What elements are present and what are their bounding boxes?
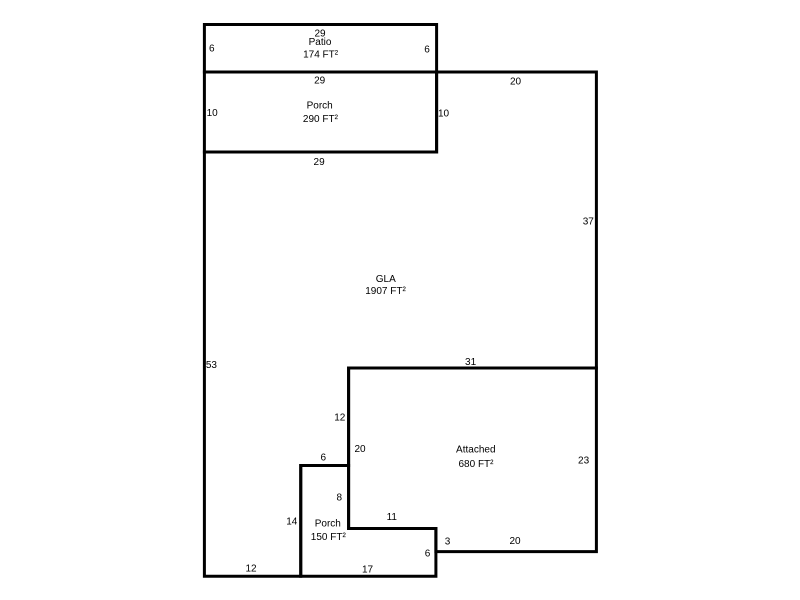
svg-text:37: 37 — [583, 217, 595, 228]
svg-text:8: 8 — [337, 492, 343, 503]
svg-text:6: 6 — [424, 45, 430, 56]
svg-text:14: 14 — [286, 516, 298, 527]
svg-text:Attached: Attached — [456, 445, 495, 456]
svg-text:20: 20 — [510, 77, 522, 88]
svg-text:10: 10 — [207, 108, 219, 119]
svg-text:20: 20 — [354, 444, 366, 455]
svg-text:6: 6 — [209, 44, 215, 55]
svg-text:6: 6 — [425, 549, 431, 560]
svg-text:23: 23 — [578, 456, 590, 467]
svg-text:GLA: GLA — [376, 274, 396, 285]
svg-text:1907 FT²: 1907 FT² — [365, 286, 406, 297]
svg-text:31: 31 — [465, 357, 477, 368]
svg-text:29: 29 — [314, 76, 326, 87]
svg-text:3: 3 — [445, 537, 451, 548]
svg-text:53: 53 — [206, 360, 218, 371]
svg-text:Patio: Patio — [309, 37, 332, 48]
svg-text:29: 29 — [314, 157, 326, 168]
svg-text:11: 11 — [387, 512, 398, 523]
svg-text:Porch: Porch — [315, 519, 341, 530]
svg-text:10: 10 — [438, 109, 450, 120]
svg-text:290 FT²: 290 FT² — [303, 114, 339, 125]
svg-text:174 FT²: 174 FT² — [303, 50, 339, 61]
svg-text:6: 6 — [321, 452, 327, 463]
svg-text:Porch: Porch — [307, 101, 333, 112]
svg-text:20: 20 — [509, 536, 521, 547]
svg-text:680 FT²: 680 FT² — [458, 459, 494, 470]
svg-text:12: 12 — [245, 564, 257, 575]
svg-text:150 FT²: 150 FT² — [311, 532, 347, 543]
svg-text:17: 17 — [362, 565, 374, 576]
svg-text:12: 12 — [334, 413, 346, 424]
